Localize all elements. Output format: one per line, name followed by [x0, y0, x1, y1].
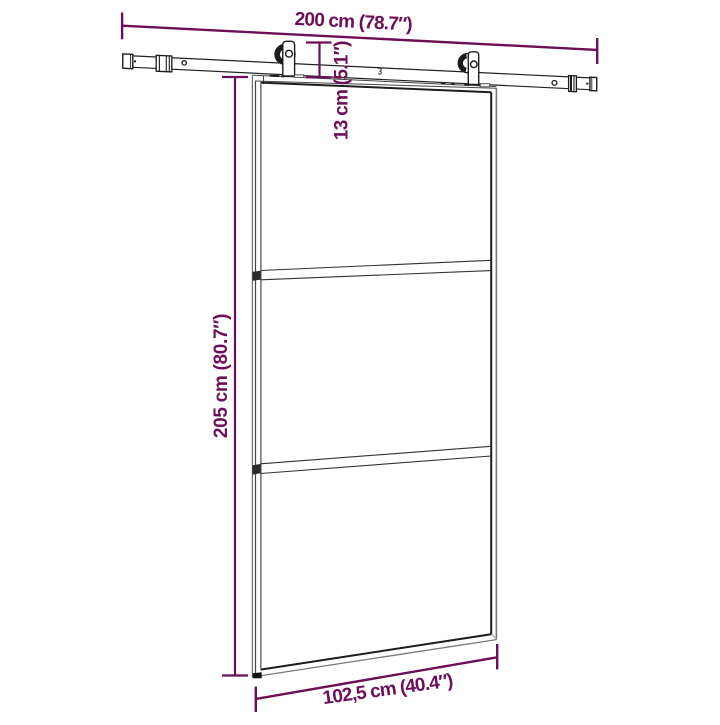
svg-text:205 cm (80.7″): 205 cm (80.7″)	[211, 314, 232, 438]
svg-text:13 cm (5.1″): 13 cm (5.1″)	[332, 41, 353, 140]
